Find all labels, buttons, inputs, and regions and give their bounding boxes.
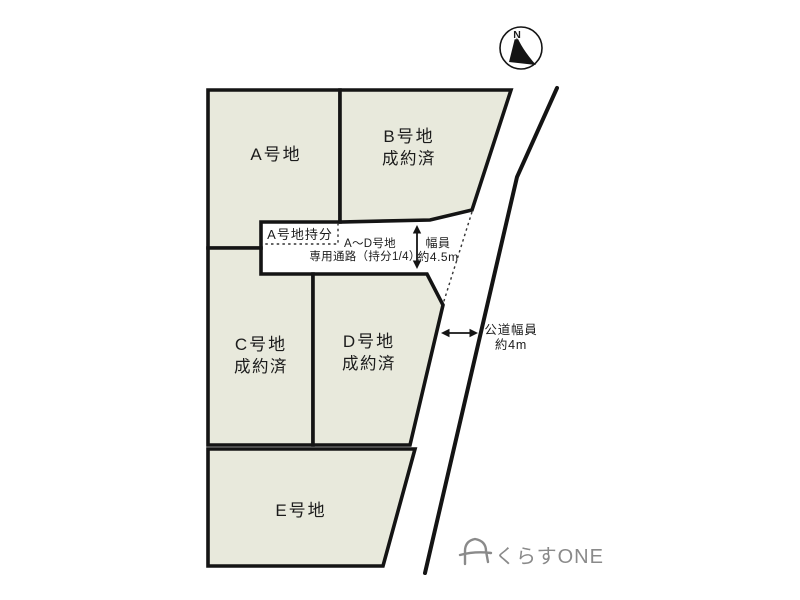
- lot-a-label: A号地: [250, 145, 301, 164]
- passage-width-label-line1: 幅員: [425, 235, 450, 250]
- lot-d-status: 成約済: [342, 354, 396, 373]
- lot-e-label: E号地: [275, 501, 326, 520]
- passage-label-line1: A～D号地: [344, 237, 396, 250]
- lot-c-status: 成約済: [234, 357, 288, 376]
- lot-c-label: C号地: [235, 335, 287, 354]
- lot-b-label: B号地: [383, 127, 434, 146]
- passage-label-line2: 専用通路（持分1/4）: [309, 249, 420, 263]
- lot-a-share-label: A号地持分: [267, 227, 333, 242]
- logo-text: くらすONE: [495, 546, 604, 568]
- lot-b-status: 成約済: [382, 149, 436, 168]
- site-plan-svg: N A号地 B号地 成約済 C号地 成約済 D号地 成約済 E号地 A号地持分 …: [0, 0, 800, 600]
- lot-layout-diagram: N A号地 B号地 成約済 C号地 成約済 D号地 成約済 E号地 A号地持分 …: [0, 0, 800, 600]
- passage-width-label-line2: 約4.5m: [417, 249, 458, 264]
- lot-d-label: D号地: [343, 332, 395, 351]
- kurasu-one-logo: くらすONE: [460, 539, 604, 568]
- public-road-width-arrow: [441, 329, 478, 337]
- lot-a: [208, 90, 340, 248]
- house-logo-icon: [460, 539, 491, 564]
- north-label: N: [513, 29, 521, 41]
- north-compass: N: [500, 27, 542, 69]
- public-road-width-label-line1: 公道幅員: [484, 322, 537, 337]
- public-road-width-label-line2: 約4m: [495, 337, 527, 352]
